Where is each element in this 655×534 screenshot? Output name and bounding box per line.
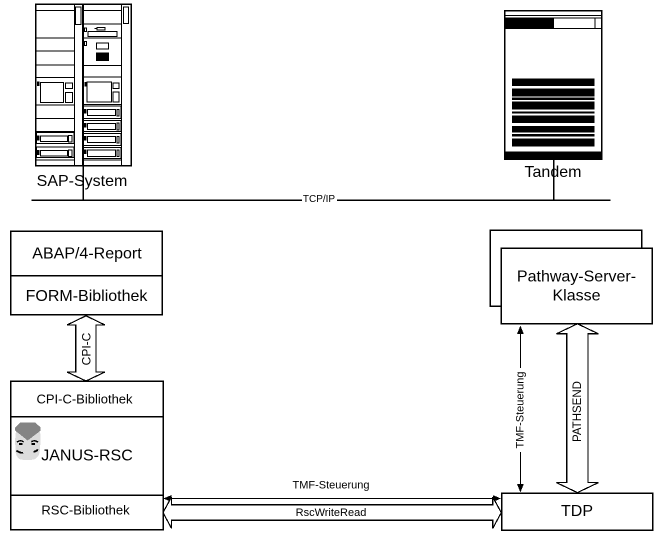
svg-text:TCP/IP: TCP/IP	[303, 194, 336, 205]
svg-text:RSC-Bibliothek: RSC-Bibliothek	[41, 503, 130, 518]
svg-text:RscWriteRead: RscWriteRead	[296, 507, 367, 519]
svg-text:TDP: TDP	[561, 503, 593, 520]
svg-text:CPI-C-Bibliothek: CPI-C-Bibliothek	[36, 391, 133, 406]
svg-text:Pathway-Server-: Pathway-Server-	[517, 269, 636, 286]
svg-text:FORM-Bibliothek: FORM-Bibliothek	[26, 288, 149, 305]
svg-text:PATHSEND: PATHSEND	[572, 381, 584, 442]
svg-text:TMF-Steuerung: TMF-Steuerung	[292, 480, 369, 492]
svg-text:Tandem: Tandem	[525, 164, 582, 181]
svg-text:TMF-Steuerung: TMF-Steuerung	[515, 371, 527, 448]
svg-text:Klasse: Klasse	[552, 287, 600, 304]
svg-text:ABAP/4-Report: ABAP/4-Report	[32, 245, 142, 262]
svg-text:JANUS-RSC: JANUS-RSC	[41, 448, 133, 465]
svg-text:CPI-C: CPI-C	[80, 332, 94, 365]
svg-text:SAP-System: SAP-System	[37, 173, 128, 190]
